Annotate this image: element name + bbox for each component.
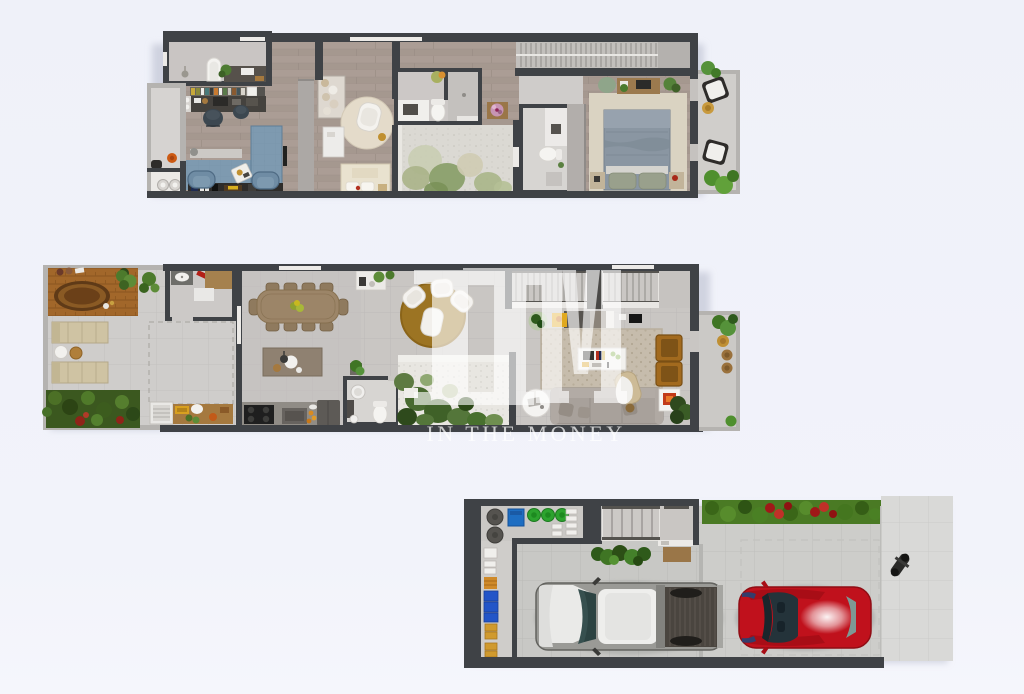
svg-text:IN THE MONEY: IN THE MONEY (426, 421, 625, 446)
